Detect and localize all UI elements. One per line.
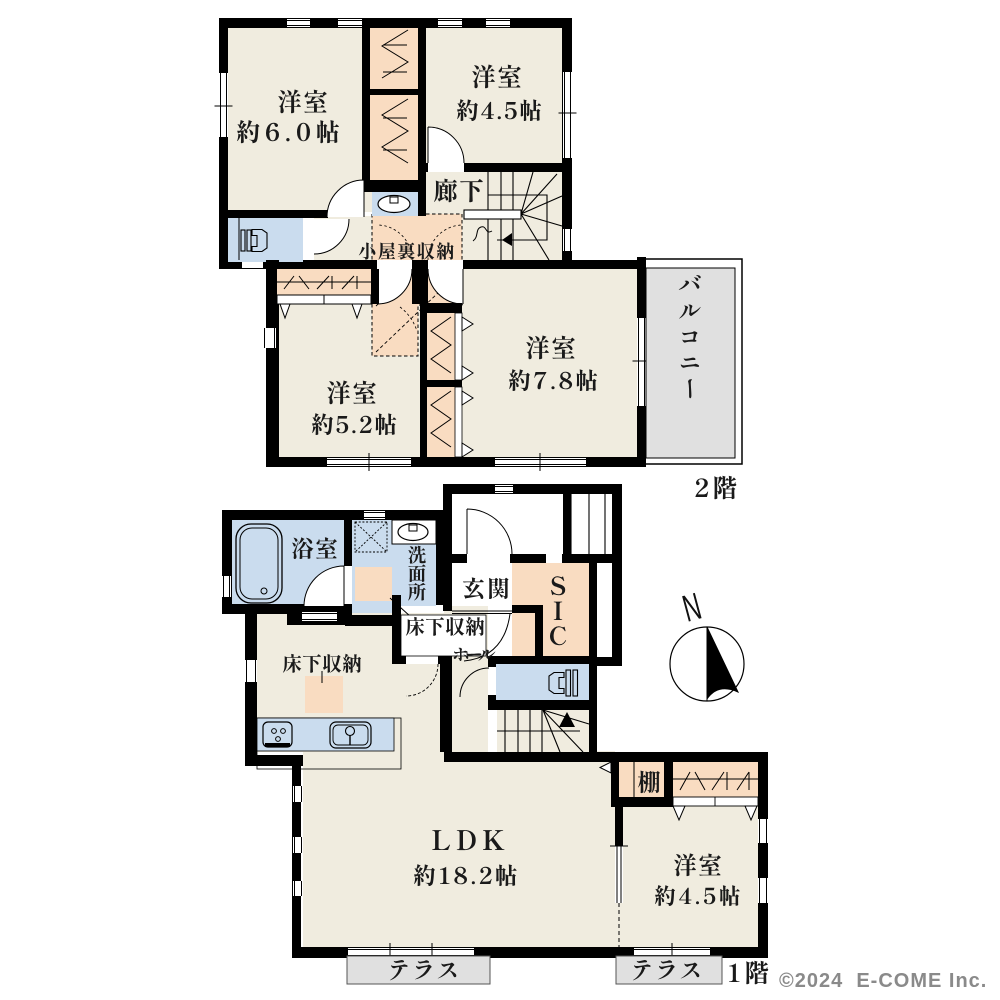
svg-text:N: N	[678, 584, 706, 630]
svg-text:©2024 E-COME Inc.: ©2024 E-COME Inc.	[779, 970, 987, 992]
